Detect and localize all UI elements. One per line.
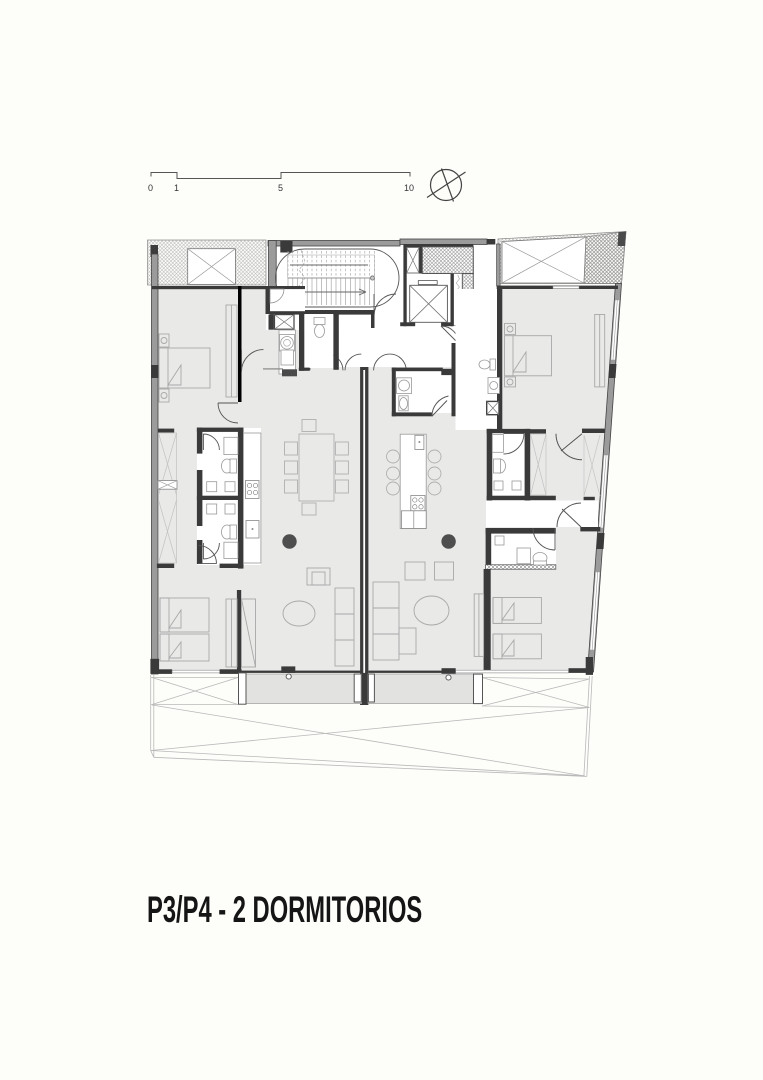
svg-text:1: 1	[174, 183, 179, 193]
svg-text:10: 10	[404, 183, 414, 193]
svg-text:0: 0	[148, 183, 153, 193]
svg-text:5: 5	[278, 183, 283, 193]
